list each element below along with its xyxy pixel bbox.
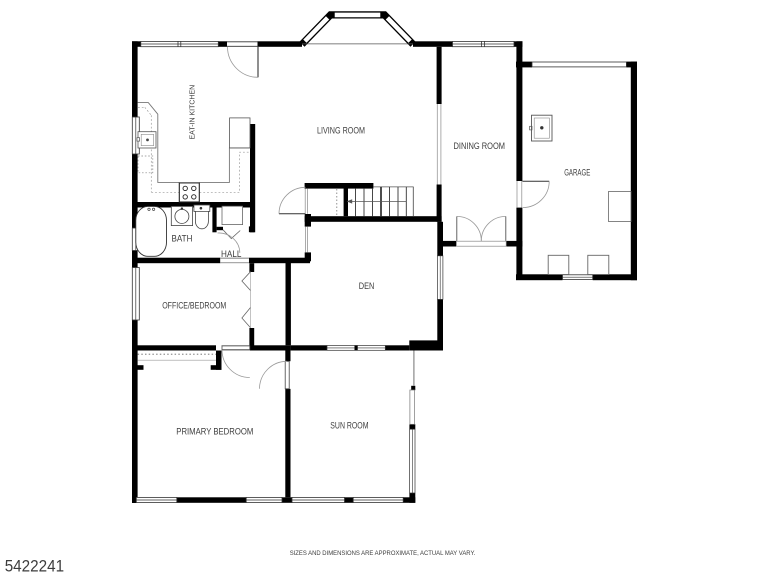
svg-text:LIVING ROOM: LIVING ROOM (317, 126, 365, 136)
svg-text:EAT-IN KITCHEN: EAT-IN KITCHEN (188, 85, 197, 140)
svg-text:HALL: HALL (221, 249, 241, 259)
svg-text:DEN: DEN (359, 281, 375, 291)
svg-text:DINING ROOM: DINING ROOM (454, 141, 506, 151)
svg-text:SUN ROOM: SUN ROOM (330, 421, 368, 431)
svg-text:PRIMARY BEDROOM: PRIMARY BEDROOM (176, 427, 253, 437)
svg-text:SIZES AND DIMENSIONS ARE APPRO: SIZES AND DIMENSIONS ARE APPROXIMATE, AC… (290, 550, 476, 557)
svg-text:5422241: 5422241 (5, 558, 64, 576)
svg-text:OFFICE/BEDROOM: OFFICE/BEDROOM (162, 300, 226, 310)
svg-text:BATH: BATH (172, 234, 193, 244)
svg-text:GARAGE: GARAGE (564, 167, 590, 177)
